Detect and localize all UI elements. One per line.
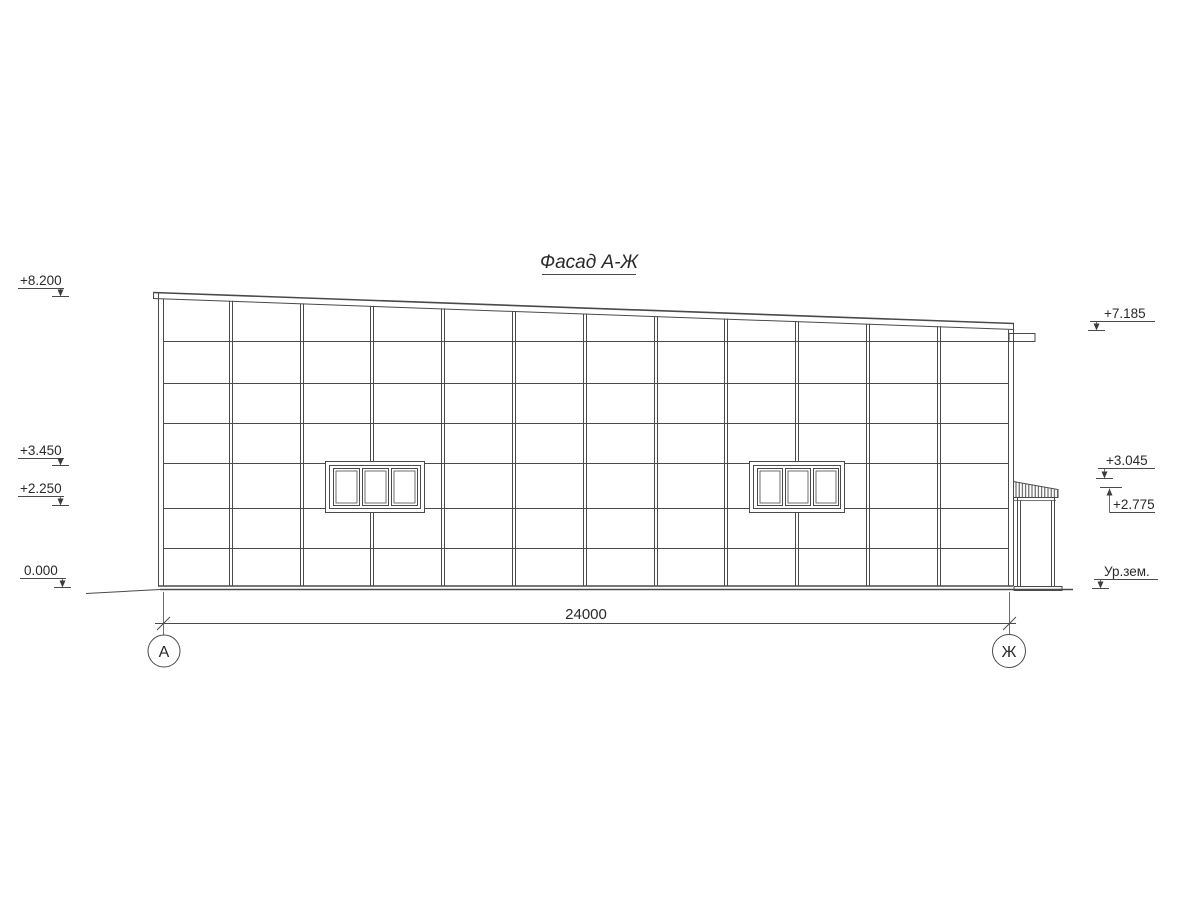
down-arrow-icon — [1094, 324, 1100, 331]
dimension-value: 24000 — [565, 606, 607, 623]
ground — [86, 586, 1073, 594]
down-arrow-icon — [60, 581, 66, 588]
window-group-left — [326, 462, 425, 513]
elevation-mark-left-8200: +8.200 — [18, 273, 69, 297]
page-title: Фасад А-Ж — [540, 252, 640, 273]
elevation-mark-right-ground: Ур.зем. — [1092, 564, 1158, 589]
roof-right-gutter — [1009, 334, 1035, 342]
elevation-mark-left-2250: +2.250 — [18, 481, 69, 506]
curtain-wall-grid — [164, 301, 1009, 586]
elevation-mark-right-2775: +2.775 — [1100, 488, 1155, 513]
axis-label-a: А — [159, 644, 170, 661]
window-outer-frame — [326, 462, 425, 513]
elevation-value: +2.775 — [1113, 497, 1155, 512]
elevation-mark-left-3450: +3.450 — [18, 443, 69, 466]
elevation-mark-right-7185: +7.185 — [1088, 306, 1155, 331]
elevation-value: +7.185 — [1104, 306, 1146, 321]
drawing-title-group: Фасад А-Ж — [540, 252, 640, 275]
down-arrow-icon — [58, 290, 64, 297]
down-arrow-icon — [58, 499, 64, 506]
elevation-mark-left-0000: 0.000 — [20, 563, 71, 588]
window-group-right — [750, 462, 845, 513]
facade-drawing-sheet: 24000 А Ж +8.200 +3.450 +2.250 0.000 +7.… — [0, 0, 1200, 900]
terrain-tail-line — [86, 590, 160, 594]
elevation-value: +3.450 — [20, 443, 62, 458]
elevation-mark-right-3045: +3.045 — [1096, 453, 1155, 479]
elevation-value: +2.250 — [20, 481, 62, 496]
sloped-roof — [153, 293, 1035, 342]
annex-porch — [1014, 482, 1063, 591]
elevation-value: Ур.зем. — [1104, 564, 1150, 579]
facade-drawing: 24000 А Ж +8.200 +3.450 +2.250 0.000 +7.… — [0, 0, 1200, 900]
axis-label-zh: Ж — [1002, 644, 1017, 661]
elevation-value: +8.200 — [20, 273, 62, 288]
elevation-value: 0.000 — [24, 563, 58, 578]
down-arrow-icon — [1098, 582, 1104, 589]
window-outer-frame — [750, 462, 845, 513]
dimension-line-group: 24000 А Ж — [148, 592, 1026, 668]
annex-roof — [1014, 482, 1059, 498]
elevation-value: +3.045 — [1106, 453, 1148, 468]
down-arrow-icon — [1102, 472, 1108, 479]
down-arrow-icon — [58, 459, 64, 466]
